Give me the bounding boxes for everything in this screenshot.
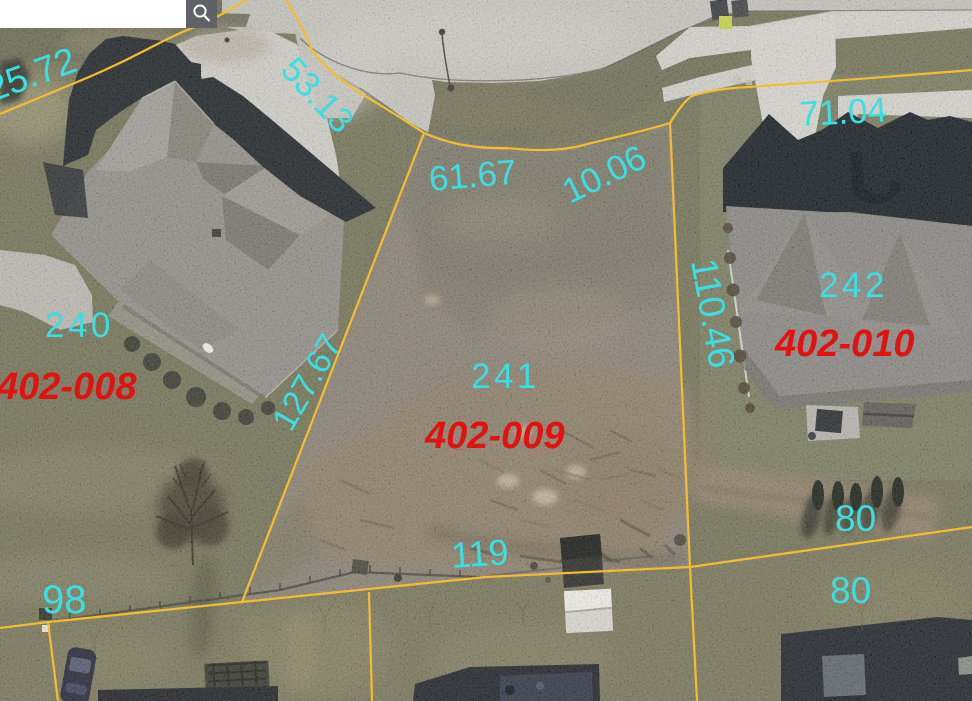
svg-text:241: 241 bbox=[471, 357, 540, 396]
svg-text:402-009: 402-009 bbox=[424, 415, 564, 457]
svg-text:402-010: 402-010 bbox=[774, 323, 914, 365]
svg-text:119: 119 bbox=[450, 531, 510, 576]
svg-text:80: 80 bbox=[835, 498, 876, 539]
svg-text:71.04: 71.04 bbox=[798, 90, 888, 134]
svg-text:98: 98 bbox=[42, 578, 87, 622]
svg-text:61.67: 61.67 bbox=[427, 152, 518, 198]
svg-text:242: 242 bbox=[819, 266, 888, 305]
svg-text:240: 240 bbox=[45, 306, 114, 345]
svg-text:80: 80 bbox=[830, 570, 871, 611]
svg-text:402-008: 402-008 bbox=[0, 366, 137, 408]
